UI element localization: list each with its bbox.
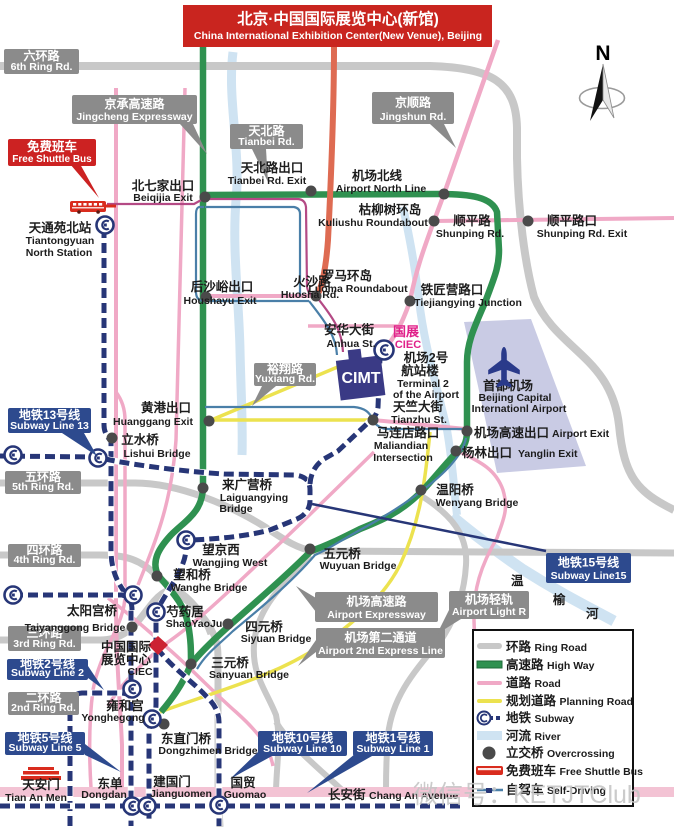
- svg-text:6th Ring Rd.: 6th Ring Rd.: [11, 61, 73, 73]
- svg-text:河: 河: [586, 606, 599, 621]
- svg-text:Wenyang Bridge: Wenyang Bridge: [436, 497, 519, 509]
- svg-text:温: 温: [511, 574, 524, 588]
- svg-text:京承高速路: 京承高速路: [104, 96, 165, 111]
- svg-text:三元桥: 三元桥: [211, 655, 249, 670]
- svg-text:North Station: North Station: [26, 247, 93, 259]
- svg-text:CIMT: CIMT: [341, 370, 380, 387]
- svg-text:3rd Ring Rd.: 3rd Ring Rd.: [13, 638, 75, 650]
- svg-text:Jianguomen: Jianguomen: [150, 788, 212, 800]
- svg-text:北七家出口: 北七家出口: [132, 178, 195, 193]
- svg-text:天竺大街: 天竺大街: [393, 399, 444, 414]
- svg-text:2nd Ring Rd.: 2nd Ring Rd.: [11, 702, 76, 714]
- svg-text:Wanghe Bridge: Wanghe Bridge: [171, 582, 248, 594]
- svg-text:国贸: 国贸: [230, 775, 256, 790]
- svg-text:Anhua St.: Anhua St.: [327, 338, 376, 350]
- svg-text:Yonghegong: Yonghegong: [81, 712, 144, 724]
- svg-text:五元桥: 五元桥: [323, 546, 361, 561]
- svg-text:Subway Line 1: Subway Line 1: [357, 743, 430, 755]
- svg-text:Dongzhimen Bridge: Dongzhimen Bridge: [158, 745, 257, 757]
- svg-text:Lishui Bridge: Lishui Bridge: [123, 448, 190, 460]
- svg-text:4th Ring Rd.: 4th Ring Rd.: [14, 554, 76, 566]
- svg-text:马连店路口: 马连店路口: [377, 425, 440, 440]
- svg-text:地铁15号线: 地铁15号线: [558, 555, 619, 570]
- svg-text:望京西: 望京西: [202, 542, 240, 557]
- svg-text:东直门桥: 东直门桥: [161, 731, 212, 746]
- svg-text:中国国际: 中国国际: [101, 639, 152, 654]
- svg-text:Airport 2nd Express Line: Airport 2nd Express Line: [318, 645, 443, 657]
- svg-text:立水桥: 立水桥: [121, 432, 159, 447]
- svg-text:机场轻轨: 机场轻轨: [465, 592, 513, 607]
- svg-text:CIEC: CIEC: [395, 339, 421, 351]
- svg-text:Wuyuan Bridge: Wuyuan Bridge: [320, 560, 397, 572]
- svg-text:Tianbei Rd. Exit: Tianbei Rd. Exit: [228, 175, 307, 187]
- svg-text:Sanyuan Bridge: Sanyuan Bridge: [209, 669, 289, 681]
- svg-text:京顺路: 京顺路: [395, 95, 432, 110]
- svg-text:Bridge: Bridge: [219, 503, 252, 515]
- svg-text:ShaoYaoJu: ShaoYaoJu: [166, 618, 223, 630]
- svg-text:5th Ring Rd.: 5th Ring Rd.: [12, 481, 74, 493]
- svg-text:来广营桥: 来广营桥: [221, 477, 273, 492]
- svg-text:黄港出口: 黄港出口: [141, 400, 191, 415]
- svg-text:国展: 国展: [393, 324, 420, 339]
- svg-text:机场高速路: 机场高速路: [346, 594, 407, 609]
- svg-text:Dongdan: Dongdan: [81, 789, 127, 801]
- svg-text:枯柳树环岛: 枯柳树环岛: [359, 202, 422, 217]
- svg-text:Taiyanggong Bridge: Taiyanggong Bridge: [25, 622, 126, 634]
- svg-text:Intersection: Intersection: [373, 452, 433, 464]
- svg-text:规划道路 Planning Road: 规划道路 Planning Road: [506, 693, 633, 708]
- svg-text:Subway Line 10: Subway Line 10: [263, 743, 342, 755]
- svg-text:火沙路: 火沙路: [293, 274, 331, 289]
- svg-text:Tiantongyuan: Tiantongyuan: [26, 235, 95, 247]
- svg-text:立交桥 Overcrossing: 立交桥 Overcrossing: [506, 745, 615, 760]
- svg-text:Guomao: Guomao: [224, 789, 267, 801]
- svg-text:展览中心: 展览中心: [101, 652, 152, 667]
- svg-text:雍和宫: 雍和宫: [106, 698, 144, 713]
- svg-text:Airport Exit: Airport Exit: [552, 428, 610, 440]
- svg-text:Huosha Rd.: Huosha Rd.: [281, 289, 339, 301]
- svg-text:顺平路: 顺平路: [453, 213, 491, 228]
- svg-text:四元桥: 四元桥: [245, 619, 283, 634]
- svg-text:免费班车: 免费班车: [27, 139, 78, 154]
- svg-text:河流 River: 河流 River: [506, 728, 561, 743]
- svg-text:Huanggang Exit: Huanggang Exit: [113, 416, 193, 428]
- svg-text:温阳桥: 温阳桥: [436, 482, 474, 497]
- svg-text:天北路出口: 天北路出口: [241, 160, 304, 175]
- svg-text:北京·中国国际展览中心(新馆): 北京·中国国际展览中心(新馆): [237, 9, 439, 28]
- svg-text:Tianzhu St.: Tianzhu St.: [391, 414, 447, 426]
- svg-text:望和桥: 望和桥: [173, 567, 211, 582]
- svg-text:Subway Line 13: Subway Line 13: [10, 420, 89, 432]
- svg-text:榆: 榆: [553, 592, 566, 607]
- svg-text:微信号：KETJTClub: 微信号：KETJTClub: [413, 781, 641, 809]
- svg-text:安华大街: 安华大街: [324, 322, 375, 337]
- svg-text:天通苑北站: 天通苑北站: [29, 220, 92, 235]
- svg-text:CIEC: CIEC: [127, 666, 153, 678]
- svg-text:高速路 High Way: 高速路 High Way: [506, 657, 595, 672]
- svg-text:Airport North Line: Airport North Line: [336, 183, 427, 195]
- svg-text:机场2号: 机场2号: [404, 350, 448, 365]
- svg-text:后沙峪出口: 后沙峪出口: [191, 279, 254, 294]
- svg-text:Yanglin Exit: Yanglin Exit: [518, 448, 578, 460]
- svg-text:机场高速出口: 机场高速出口: [474, 425, 549, 440]
- svg-text:Tianbei Rd.: Tianbei Rd.: [238, 136, 294, 148]
- svg-text:Siyuan Bridge: Siyuan Bridge: [241, 633, 312, 645]
- svg-text:Yuxiang Rd.: Yuxiang Rd.: [255, 373, 315, 385]
- svg-text:顺平路口: 顺平路口: [547, 213, 597, 228]
- svg-text:Houshayu Exit: Houshayu Exit: [184, 295, 257, 307]
- svg-text:Shunping Rd. Exit: Shunping Rd. Exit: [537, 228, 628, 240]
- svg-text:杨林出口: 杨林出口: [462, 445, 512, 460]
- svg-text:芍药居: 芍药居: [166, 604, 204, 619]
- svg-text:天安门: 天安门: [22, 777, 60, 792]
- svg-text:Free Shuttle Bus: Free Shuttle Bus: [12, 154, 92, 165]
- svg-text:免费班车 Free Shuttle Bus: 免费班车 Free Shuttle Bus: [506, 763, 643, 778]
- svg-text:Airport Expressway: Airport Expressway: [327, 609, 426, 621]
- svg-text:Jingshun Rd.: Jingshun Rd.: [380, 111, 447, 123]
- svg-text:Shunping Rd.: Shunping Rd.: [436, 228, 504, 240]
- svg-text:航站楼: 航站楼: [401, 363, 439, 378]
- svg-text:地铁 Subway: 地铁 Subway: [506, 710, 574, 725]
- svg-text:Maliandian: Maliandian: [374, 440, 428, 452]
- svg-text:Subway Line 2: Subway Line 2: [11, 667, 84, 679]
- svg-text:机场第二通道: 机场第二通道: [344, 630, 416, 645]
- svg-text:太阳宫桥: 太阳宫桥: [67, 603, 118, 618]
- svg-text:道路 Road: 道路 Road: [506, 675, 561, 690]
- svg-text:Tiejiangying Junction: Tiejiangying Junction: [414, 297, 522, 309]
- svg-text:环路 Ring Road: 环路 Ring Road: [506, 639, 587, 654]
- svg-text:铁匠营路口: 铁匠营路口: [421, 282, 484, 297]
- svg-text:机场北线: 机场北线: [352, 168, 403, 183]
- svg-text:Internationl Airport: Internationl Airport: [472, 403, 567, 415]
- svg-text:Subway Line15: Subway Line15: [551, 570, 627, 582]
- svg-text:Kuliushu Roundabout: Kuliushu Roundabout: [318, 217, 428, 229]
- svg-text:N: N: [595, 42, 610, 65]
- svg-text:Subway Line 5: Subway Line 5: [9, 742, 82, 754]
- svg-text:Airport Light R: Airport Light R: [452, 606, 526, 618]
- svg-text:Jingcheng Expressway: Jingcheng Expressway: [76, 111, 192, 123]
- svg-text:建国门: 建国门: [153, 774, 191, 789]
- svg-text:Beiqijia Exit: Beiqijia Exit: [133, 192, 193, 204]
- svg-text:Tian An Men: Tian An Men: [5, 792, 67, 804]
- svg-text:China International Exhibition: China International Exhibition Center(Ne…: [194, 30, 482, 42]
